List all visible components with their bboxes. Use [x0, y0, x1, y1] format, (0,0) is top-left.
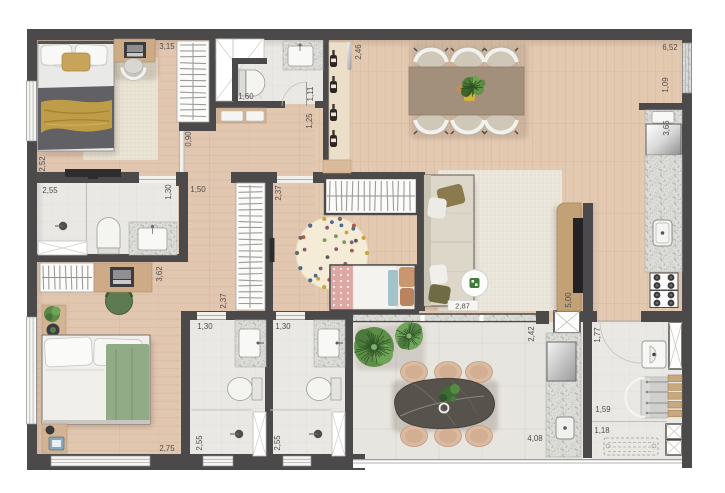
- svg-text:3,66: 3,66: [662, 120, 671, 135]
- svg-text:2,46: 2,46: [354, 44, 363, 59]
- svg-text:2,37: 2,37: [274, 185, 283, 200]
- svg-text:2,55: 2,55: [273, 435, 282, 451]
- svg-text:1,30: 1,30: [275, 322, 291, 331]
- svg-text:1,30: 1,30: [197, 322, 213, 331]
- svg-text:1,25: 1,25: [305, 113, 314, 129]
- svg-text:2,42: 2,42: [527, 326, 536, 341]
- svg-text:2,55: 2,55: [195, 435, 204, 451]
- svg-text:2,37: 2,37: [219, 293, 228, 308]
- svg-text:1,09: 1,09: [661, 77, 670, 92]
- svg-text:1,60: 1,60: [238, 92, 254, 101]
- svg-text:1,77: 1,77: [593, 327, 602, 342]
- svg-text:0,90: 0,90: [184, 131, 193, 147]
- svg-text:2,55: 2,55: [42, 186, 58, 195]
- svg-text:6,52: 6,52: [662, 43, 677, 52]
- svg-text:3,62: 3,62: [155, 266, 164, 281]
- svg-text:2,52: 2,52: [38, 156, 47, 171]
- svg-text:3,15: 3,15: [159, 42, 175, 51]
- svg-text:1,50: 1,50: [190, 185, 206, 194]
- svg-text:2,87: 2,87: [455, 302, 470, 311]
- svg-text:5,00: 5,00: [564, 292, 573, 308]
- svg-text:1,59: 1,59: [595, 405, 610, 414]
- svg-text:1,18: 1,18: [594, 426, 609, 435]
- svg-text:4,08: 4,08: [527, 434, 542, 443]
- svg-text:1,11: 1,11: [306, 87, 315, 102]
- svg-text:2,75: 2,75: [159, 444, 175, 453]
- svg-text:1,30: 1,30: [164, 184, 173, 200]
